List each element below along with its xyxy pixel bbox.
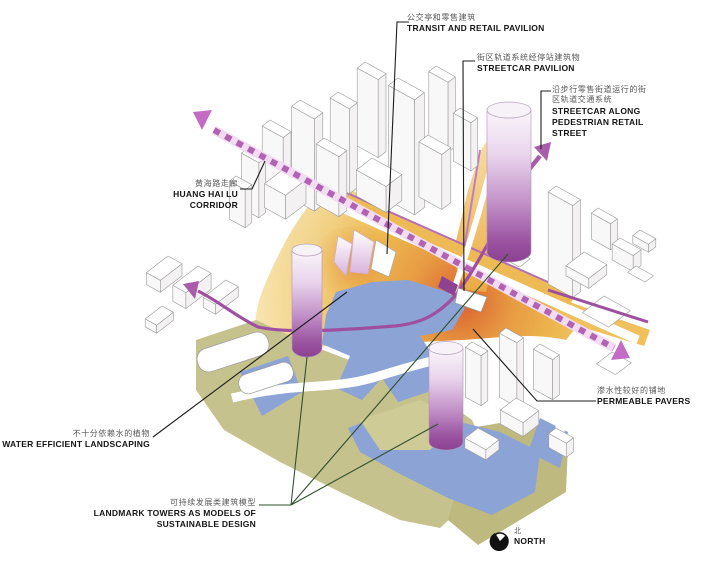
label-water-efficient-landscaping: 不十分依赖水的植物 WATER EFFICIENT LANDSCAPING [0, 429, 150, 450]
tower-cylinder-bottom-top [429, 342, 463, 355]
north-compass-icon [490, 533, 509, 551]
leader-streetcar-street [541, 91, 551, 149]
building-face [481, 351, 488, 406]
label-en: HUANG HAI LU CORRIDOR [158, 189, 238, 211]
label-en: PERMEABLE PAVERS [597, 396, 690, 407]
building-face [499, 333, 517, 407]
label-streetcar-street: 沿步行零售街道运行的街区轨道交通系统 STREETCAR ALONG PEDES… [552, 85, 652, 139]
tower-cylinder-tall [487, 110, 531, 262]
building-face [465, 347, 481, 406]
label-en: NORTH [514, 536, 545, 547]
label-landmark-towers: 可持续发展类建筑模型 LANDMARK TOWERS AS MODELS OF … [90, 498, 256, 530]
label-streetcar-pavilion: 街区轨道系统经停站建筑物 STREETCAR PAVILION [477, 53, 580, 74]
label-huang-hai-lu-corridor: 黄海路走廊 HUANG HAI LU CORRIDOR [158, 179, 238, 211]
building-face [378, 74, 386, 158]
building-face [517, 338, 524, 407]
label-zh: 街区轨道系统经停站建筑物 [477, 53, 580, 63]
label-en: WATER EFFICIENT LANDSCAPING [0, 439, 150, 450]
tower-cylinder-bottom [429, 348, 463, 450]
label-zh: 沿步行零售街道运行的街区轨道交通系统 [552, 85, 652, 106]
tower-cylinder-left-top [292, 244, 322, 256]
tower-cylinder-left [292, 250, 322, 357]
building-face [548, 192, 573, 298]
label-zh: 渗水性较好的铺地 [597, 386, 690, 396]
label-en: STREETCAR ALONG PEDESTRIAN RETAIL STREET [552, 106, 652, 139]
site-diagram: 公交亭和零售建筑 TRANSIT AND RETAIL PAVILION 街区轨… [0, 0, 720, 570]
building-face [453, 113, 471, 171]
label-en: TRANSIT AND RETAIL PAVILION [407, 23, 545, 34]
label-en: STREETCAR PAVILION [477, 63, 580, 74]
label-north: 北 NORTH [514, 527, 545, 547]
building-face [245, 185, 252, 228]
building-face [553, 355, 560, 400]
building-face [471, 118, 478, 171]
label-zh: 可持续发展类建筑模型 [90, 498, 256, 508]
label-zh: 黄海路走廊 [158, 179, 238, 189]
label-permeable-pavers: 渗水性较好的铺地 PERMEABLE PAVERS [597, 386, 690, 407]
building-face [442, 148, 451, 210]
label-zh: 不十分依赖水的植物 [0, 429, 150, 439]
corridor-arrow-nw-icon [193, 110, 212, 130]
label-en: LANDMARK TOWERS AS MODELS OF SUSTAINABLE… [90, 508, 256, 530]
label-transit-retail-pavilion: 公交亭和零售建筑 TRANSIT AND RETAIL PAVILION [407, 13, 545, 34]
building-face [357, 68, 378, 158]
label-zh: 北 [514, 527, 545, 536]
label-zh: 公交亭和零售建筑 [407, 13, 545, 23]
tower-cylinder-tall-top [487, 102, 531, 118]
